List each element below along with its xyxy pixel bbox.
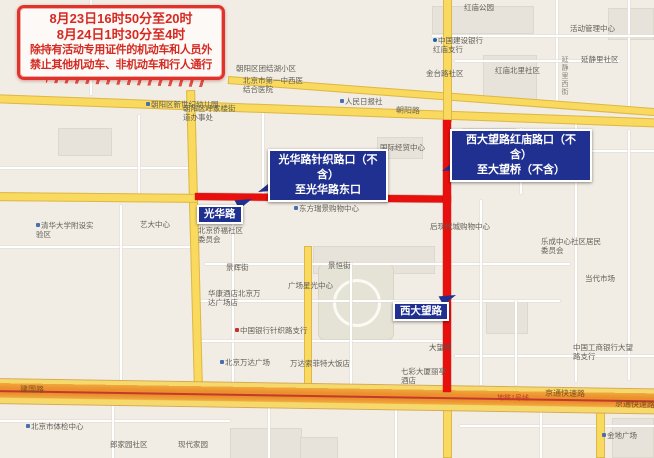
map-poi-label: 现代家园	[178, 440, 208, 449]
poi-text: 清华大学附设实验区	[36, 221, 94, 239]
street	[196, 340, 446, 342]
poi-text: 景辉街	[226, 263, 249, 272]
poi-text: 红庙北里社区	[495, 66, 540, 75]
poi-text: 中国工商银行大望路支行	[573, 343, 633, 361]
map-poi-label: 万达索菲特大饭店	[290, 359, 350, 368]
map-poi-label: 乐成中心社区居民委员会	[541, 237, 603, 255]
road-label-metro-line1: 地铁1号线	[497, 393, 529, 404]
poi-marker-icon	[26, 424, 30, 428]
poi-text: 万达索菲特大饭店	[290, 359, 350, 368]
map-poi-label: 后现代城购物中心	[430, 222, 490, 231]
map-poi-label: 郎家园社区	[110, 440, 148, 449]
map-poi-label: 东方瑞景购物中心	[294, 204, 359, 213]
poi-text: 中国建设银行红庙支行	[433, 36, 483, 54]
notice-line-4: 禁止其他机动车、非机动车和行人通行	[22, 58, 220, 73]
map-poi-label: 艺大中心	[140, 220, 170, 229]
map-poi-label: 朝阳区团结湖小区	[236, 64, 296, 73]
street	[0, 167, 192, 169]
map-poi-label: 北京万达广场	[220, 358, 270, 367]
poi-text: 中国银行针织路支行	[240, 326, 308, 335]
map-poi-label: 金地广场	[602, 431, 637, 440]
bank-icon	[433, 38, 437, 42]
poi-marker-icon	[36, 223, 40, 227]
poi-text: 延静里社区	[581, 55, 619, 64]
poi-text: 后现代城购物中心	[430, 222, 490, 231]
poi-text: 北京侨福社区委员会	[198, 226, 243, 244]
street	[556, 0, 558, 108]
street	[628, 0, 630, 110]
map-poi-label: 人民日报社	[340, 97, 383, 106]
road-label-jingtong-2: 京通快速路	[615, 398, 654, 410]
road-label-dawang-bridge: 大望桥	[429, 342, 452, 353]
poi-marker-icon	[340, 99, 344, 103]
poi-text: 红庙公园	[464, 3, 494, 12]
badge-guanghualu: 光华路	[197, 205, 243, 224]
map-poi-label: 中国银行针织路支行	[235, 326, 308, 335]
map-poi-label: 中国工商银行大望路支行	[573, 343, 633, 361]
poi-text: 郎家园社区	[110, 440, 148, 449]
map-poi-label: 当代市场	[585, 274, 615, 283]
notice-line-2: 8月24日1时30分至4时	[22, 27, 220, 43]
poi-text: 景恒街	[328, 261, 351, 270]
callout-guanghualu-closure: 光华路针织路口（不含） 至光华路东口	[268, 149, 388, 202]
poi-text: 人民日报社	[345, 97, 383, 106]
map-poi-label: 北京侨福社区委员会	[198, 226, 250, 244]
street	[120, 205, 122, 385]
map-poi-label: 中国建设银行红庙支行	[433, 36, 487, 54]
poi-text: 朝阳区团结湖小区	[236, 64, 296, 73]
park-ring-path	[333, 279, 381, 327]
poi-text: 当代市场	[585, 274, 615, 283]
road-xidawanglu-north	[443, 0, 452, 122]
callout-line: 至大望桥（不含）	[458, 163, 584, 178]
map-poi-label: 延静里社区	[581, 55, 619, 64]
map-poi-label: 北京市第一中西医结合医院	[243, 76, 305, 94]
street	[515, 300, 517, 385]
poi-text: 金台路社区	[426, 69, 464, 78]
poi-text: 广场星光中心	[288, 281, 333, 290]
street	[460, 425, 654, 427]
poi-text: 七彩大厦丽亭酒店	[401, 367, 446, 385]
map-poi-label: 金台路社区	[426, 69, 464, 78]
badge-xidawanglu: 西大望路	[393, 302, 449, 321]
road-vertical-mid	[304, 246, 312, 392]
poi-text: 北京市体检中心	[31, 422, 84, 431]
map-poi-label: 华康酒店北京万达广场店	[208, 289, 266, 307]
poi-marker-icon	[220, 360, 224, 364]
map-poi-label: 景辉街	[226, 263, 249, 272]
bank-icon	[235, 328, 239, 332]
street	[205, 263, 570, 265]
building-block	[300, 437, 338, 458]
map-poi-label: 红庙北里社区	[495, 66, 540, 75]
poi-text: 北京市第一中西医结合医院	[243, 76, 303, 94]
callout-line: 光华路针织路口（不含）	[276, 153, 380, 183]
street	[138, 115, 140, 195]
street	[0, 246, 196, 248]
street	[268, 400, 270, 458]
street	[262, 112, 264, 194]
park-area	[318, 264, 394, 340]
poi-text: 东方瑞景购物中心	[299, 204, 359, 213]
traffic-restriction-notice: 8月23日16时50分至20时 8月24日1时30分至4时 除持有活动专用证件的…	[17, 5, 225, 80]
building-block	[230, 428, 302, 458]
building-block	[486, 300, 528, 334]
road-label-jianguolu: 建国路	[20, 384, 44, 395]
map-poi-label: 广场星光中心	[288, 281, 333, 290]
poi-text: 现代家园	[178, 440, 208, 449]
poi-marker-icon	[602, 433, 606, 437]
poi-text: 华康酒店北京万达广场店	[208, 289, 261, 307]
map-poi-label: 景恒街	[328, 261, 351, 270]
callout-line: 至光华路东口	[276, 183, 380, 198]
poi-text: 艺大中心	[140, 220, 170, 229]
poi-marker-icon	[294, 206, 298, 210]
road-label-jingtong-1: 京通快速路	[545, 388, 585, 400]
map-poi-label: 七彩大厦丽亭酒店	[401, 367, 451, 385]
poi-text: 朝阳区呼家楼街道办事处	[183, 104, 236, 122]
building-block	[58, 128, 112, 156]
street	[350, 263, 352, 388]
street	[112, 400, 114, 458]
callout-line: 西大望路红庙路口（不含）	[458, 133, 584, 163]
map-canvas[interactable]: 朝阳路 建国路 京通快速路 京通快速路 地铁1号线 大望桥 延静里西街 光华路针…	[0, 0, 654, 458]
road-label-yanjing-west-st: 延静里西街	[559, 56, 569, 96]
poi-marker-icon	[146, 102, 150, 106]
map-poi-label: 北京市体检中心	[26, 422, 84, 431]
poi-text: 活动管理中心	[570, 24, 615, 33]
poi-text: 金地广场	[607, 431, 637, 440]
road-guanghualu-west	[0, 192, 198, 203]
map-poi-label: 朝阳区呼家楼街道办事处	[183, 104, 239, 122]
map-poi-label: 清华大学附设实验区	[36, 221, 94, 239]
map-poi-label: 红庙公园	[464, 3, 494, 12]
notice-line-1: 8月23日16时50分至20时	[22, 11, 220, 27]
poi-text: 乐成中心社区居民委员会	[541, 237, 601, 255]
callout-xidawanglu-closure: 西大望路红庙路口（不含） 至大望桥（不含）	[450, 129, 592, 182]
notice-line-3: 除持有活动专用证件的机动车和人员外	[22, 43, 220, 58]
road-label-chaoyanglu: 朝阳路	[396, 105, 420, 117]
poi-text: 北京万达广场	[225, 358, 270, 367]
map-poi-label: 活动管理中心	[570, 24, 615, 33]
